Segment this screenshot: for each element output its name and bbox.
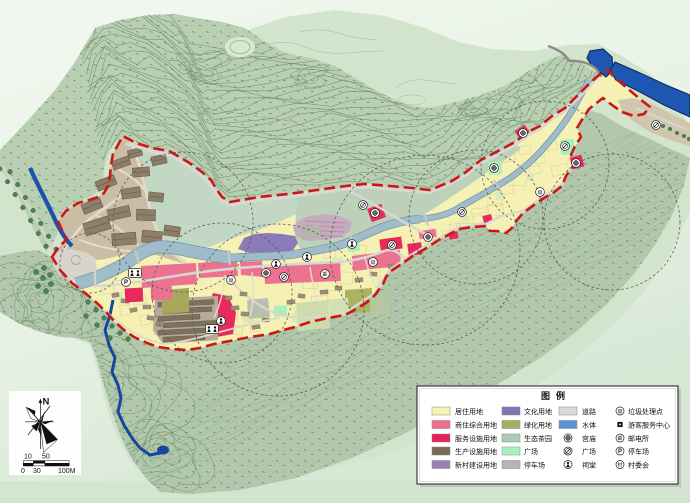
- svg-text:居住用地: 居住用地: [455, 407, 483, 416]
- svg-text:服务设施用地: 服务设施用地: [455, 434, 497, 443]
- svg-text:停车场: 停车场: [524, 461, 545, 470]
- svg-text:新村建设用地: 新村建设用地: [455, 461, 497, 470]
- svg-text:商住综合用地: 商住综合用地: [455, 421, 497, 430]
- svg-text:邮: 邮: [322, 271, 327, 278]
- svg-text:圾: 圾: [228, 277, 233, 284]
- svg-text:游客服务中心: 游客服务中心: [628, 421, 670, 430]
- svg-text:水体: 水体: [582, 421, 596, 430]
- svg-text:道路: 道路: [582, 407, 596, 416]
- svg-text:P: P: [124, 280, 128, 286]
- svg-text:邮: 邮: [617, 435, 622, 442]
- svg-text:绿化用地: 绿化用地: [524, 421, 552, 430]
- svg-text:100M: 100M: [58, 468, 76, 475]
- svg-text:圾: 圾: [617, 408, 622, 415]
- svg-text:祠堂: 祠堂: [582, 461, 596, 470]
- svg-text:50: 50: [42, 454, 50, 461]
- svg-text:文化用地: 文化用地: [524, 407, 552, 416]
- svg-text:停车场: 停车场: [628, 447, 649, 456]
- svg-text:宫庙: 宫庙: [582, 434, 596, 443]
- svg-text:广场: 广场: [582, 447, 596, 456]
- svg-text:圾: 圾: [370, 259, 375, 266]
- svg-text:圾: 圾: [537, 189, 542, 196]
- svg-text:垃圾处理点: 垃圾处理点: [628, 407, 663, 416]
- svg-text:P: P: [618, 449, 622, 455]
- svg-text:10: 10: [24, 454, 32, 461]
- svg-text:村委会: 村委会: [628, 461, 649, 470]
- svg-text:30: 30: [33, 468, 41, 475]
- svg-text:生态茶园: 生态茶园: [524, 434, 552, 443]
- svg-text:0: 0: [21, 468, 25, 475]
- svg-text:广场: 广场: [524, 447, 538, 456]
- svg-text:村: 村: [617, 462, 622, 469]
- svg-text:图例: 图例: [541, 390, 571, 401]
- svg-text:N: N: [43, 397, 50, 408]
- svg-text:生产设施用地: 生产设施用地: [455, 447, 497, 456]
- svg-text:邮电所: 邮电所: [628, 434, 649, 443]
